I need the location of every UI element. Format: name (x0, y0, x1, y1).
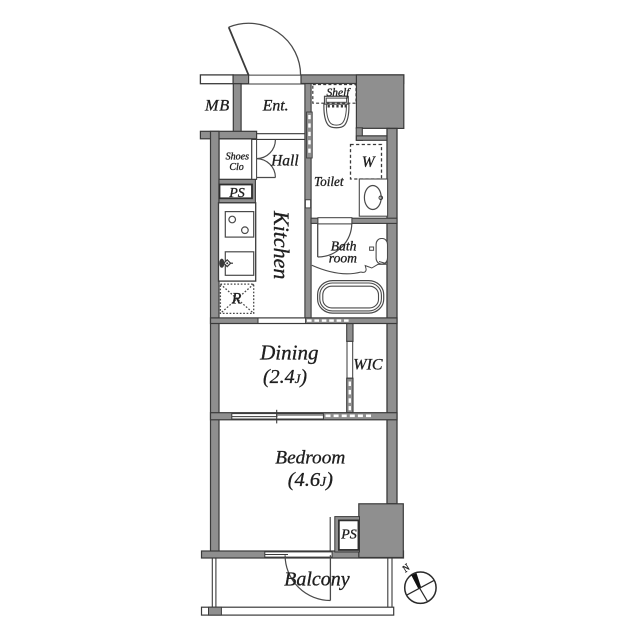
svg-text:PS: PS (340, 528, 357, 543)
svg-text:WIC: WIC (353, 356, 383, 373)
svg-text:R: R (231, 291, 242, 308)
svg-text:Shelf: Shelf (327, 87, 352, 99)
svg-text:Shoes: Shoes (226, 151, 249, 162)
svg-text:Balcony: Balcony (284, 568, 350, 590)
svg-text:Toilet: Toilet (314, 174, 344, 189)
svg-text:Ent.: Ent. (262, 97, 289, 114)
svg-text:Kitchen: Kitchen (269, 210, 294, 279)
svg-text:MB: MB (204, 96, 230, 115)
svg-text:Hall: Hall (270, 152, 299, 169)
svg-text:(4.6J): (4.6J) (288, 469, 333, 491)
svg-text:Dining: Dining (259, 340, 318, 364)
svg-text:Clo: Clo (229, 162, 243, 173)
svg-text:room: room (329, 251, 357, 266)
svg-text:(2.4J): (2.4J) (263, 366, 307, 388)
svg-text:Bedroom: Bedroom (275, 448, 345, 469)
svg-text:PS: PS (228, 186, 245, 201)
svg-text:W: W (362, 154, 376, 171)
